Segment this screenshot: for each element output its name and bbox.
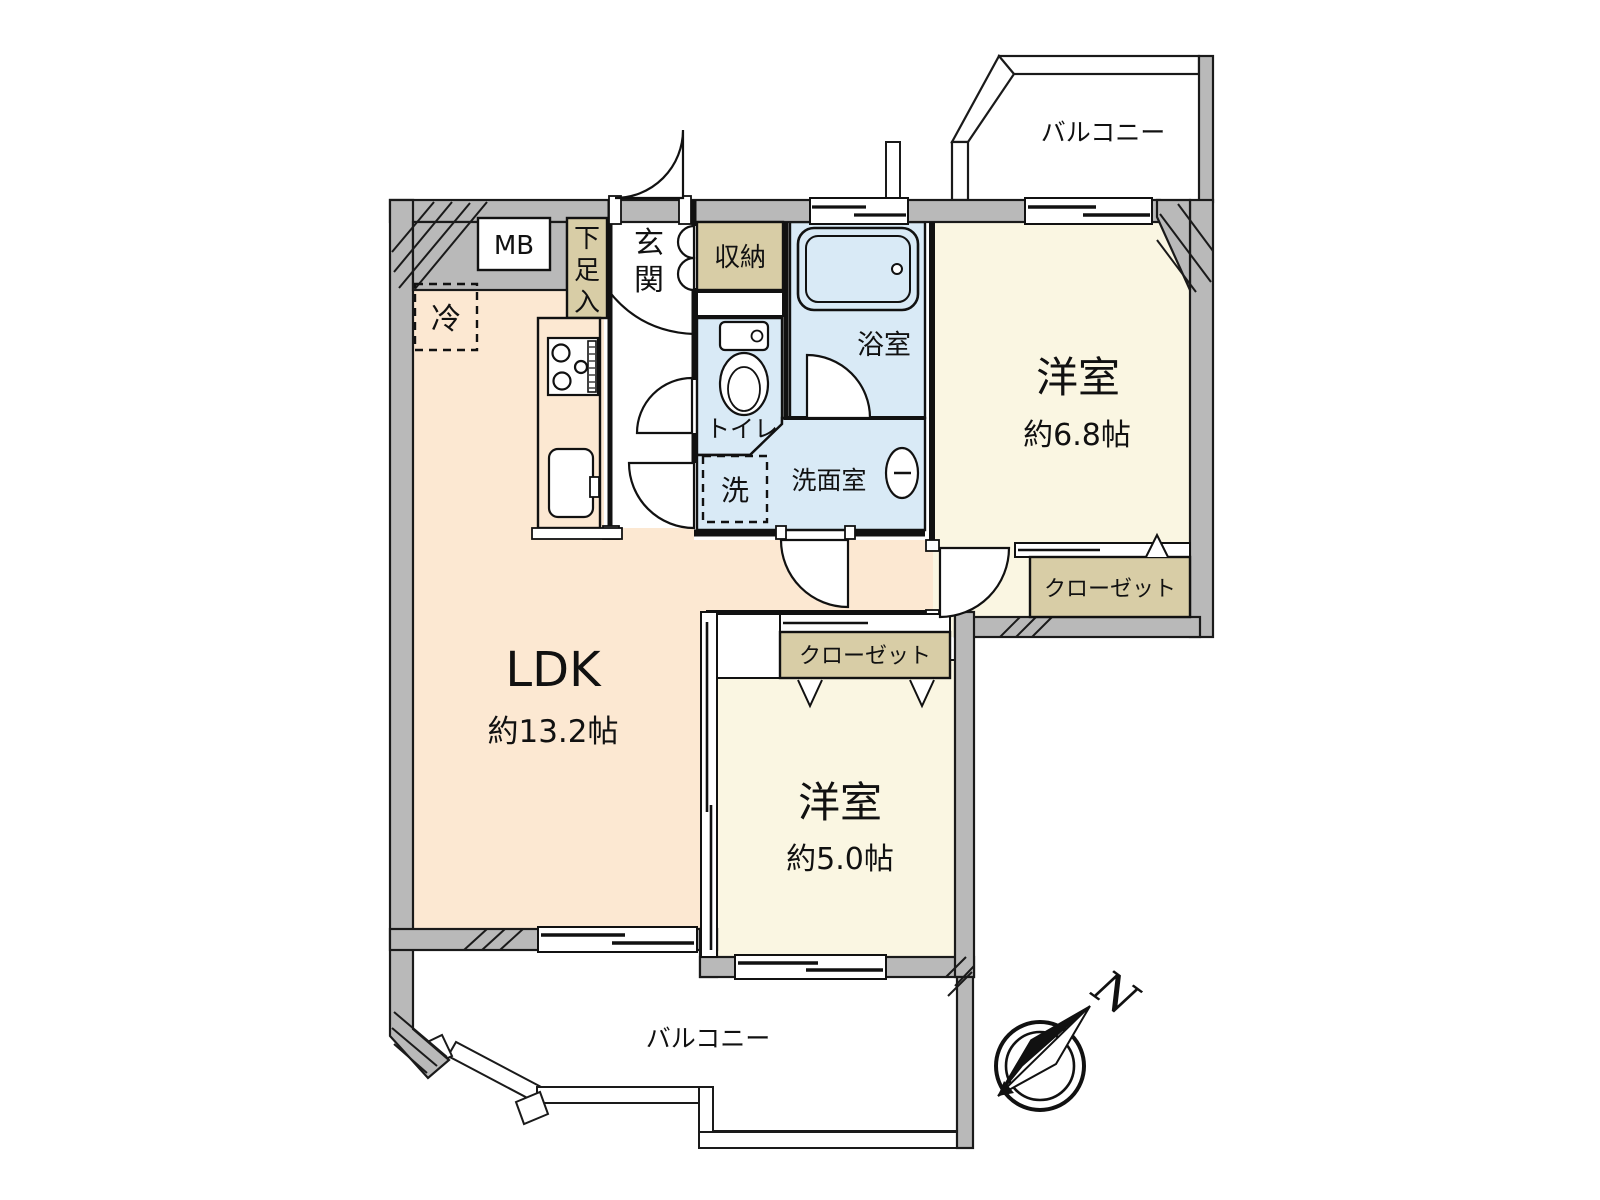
toilet-icon xyxy=(720,322,768,415)
storage-bifold-door xyxy=(678,258,694,290)
label-room-68: 洋室 xyxy=(1036,353,1120,402)
label-balcony-bottom: バルコニー xyxy=(646,1024,771,1053)
label-fridge: 冷 xyxy=(431,302,461,337)
storage-bifold-door xyxy=(678,226,694,258)
sliding-partition xyxy=(701,612,717,957)
label-room-50-size: 約5.0帖 xyxy=(786,842,894,877)
bath-window xyxy=(810,198,908,224)
entrance-door xyxy=(615,130,683,198)
stove-icon xyxy=(548,338,598,395)
room-50-balcony-window xyxy=(735,955,886,979)
label-balcony-top: バルコニー xyxy=(1041,118,1166,147)
label-washroom: 洗面室 xyxy=(791,466,866,495)
label-storage: 収納 xyxy=(714,243,766,273)
label-bath: 浴室 xyxy=(857,330,911,361)
label-ldk: LDK xyxy=(505,642,602,698)
label-closet-68: クローゼット xyxy=(1044,577,1176,602)
kitchen-sink-icon xyxy=(549,449,599,517)
label-washer: 洗 xyxy=(721,474,749,507)
compass-north-label: N xyxy=(1082,959,1149,1028)
compass-needle-white xyxy=(998,1006,1090,1096)
room-68-balcony-window xyxy=(1025,198,1152,224)
label-ldk-size: 約13.2帖 xyxy=(487,714,618,750)
toilet-door xyxy=(637,378,692,433)
storage-shelf xyxy=(697,292,783,316)
hall-door xyxy=(629,463,694,528)
label-toilet: トイレ xyxy=(706,415,778,443)
ldk-balcony-window xyxy=(538,927,697,952)
compass: N xyxy=(996,959,1149,1110)
label-closet-50: クローゼット xyxy=(799,644,931,669)
label-shoe-box: 下足入 xyxy=(574,224,600,318)
washbasin-icon xyxy=(886,448,918,498)
floorplan-page: N MB 下足入 玄関 収納 浴室 トイレ 洗 洗面室 冷 LDK 約13.2帖… xyxy=(0,0,1600,1200)
label-room-68-size: 約6.8帖 xyxy=(1023,418,1131,453)
label-genkan: 玄関 xyxy=(634,226,664,298)
bathtub-icon xyxy=(798,228,918,310)
label-meter-box: MB xyxy=(494,231,534,261)
floorplan-drawing: N MB 下足入 玄関 収納 浴室 トイレ 洗 洗面室 冷 LDK 約13.2帖… xyxy=(0,0,1600,1200)
label-room-50: 洋室 xyxy=(798,778,882,827)
